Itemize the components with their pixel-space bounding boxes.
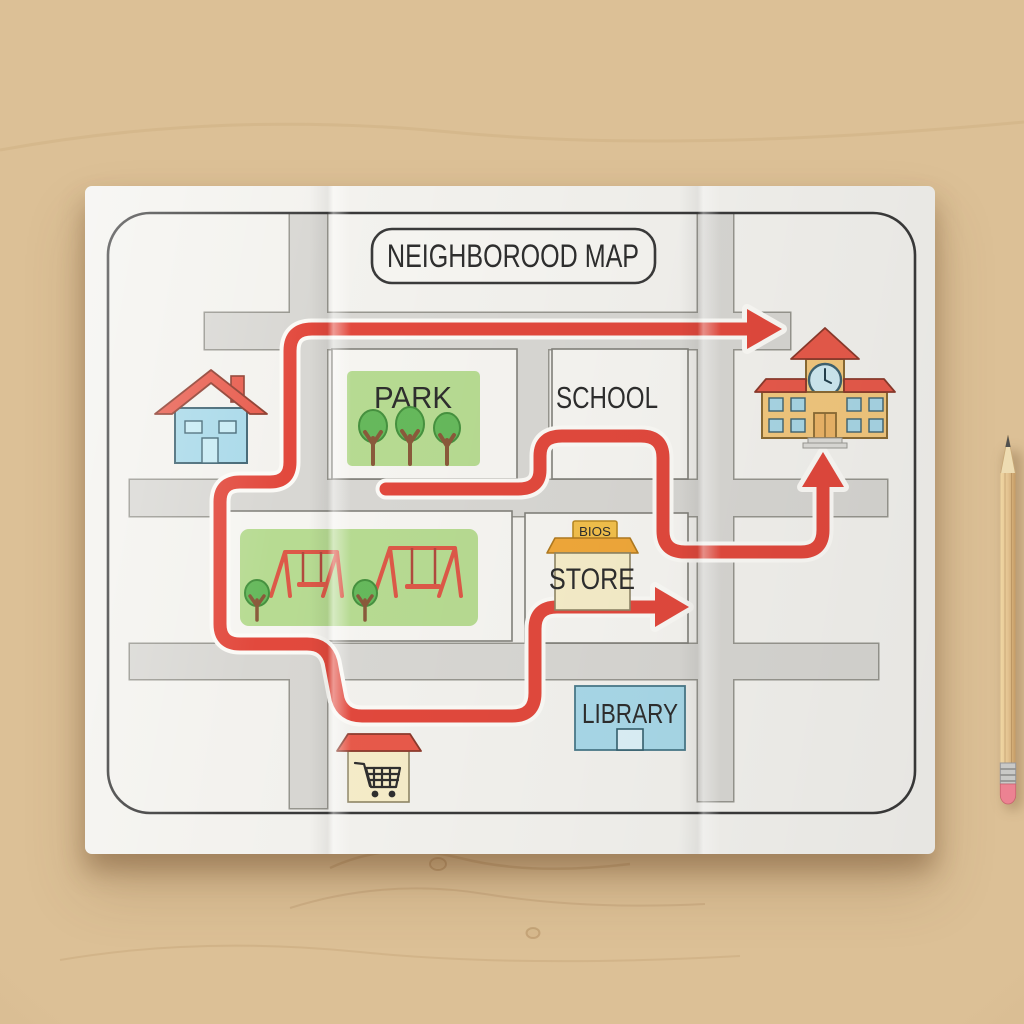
pencil-icon bbox=[991, 430, 1024, 808]
road-vertical-right-fill bbox=[698, 214, 733, 801]
cart-kiosk-roof bbox=[337, 734, 421, 751]
map-title: NEIGHBOROOD MAP bbox=[387, 238, 639, 274]
grain-line bbox=[290, 888, 705, 908]
pencil-body bbox=[1001, 473, 1016, 763]
title-box: NEIGHBOROOD MAP bbox=[372, 229, 655, 283]
library-door bbox=[617, 729, 643, 750]
desk-scene: NEIGHBOROOD MAP PARK SCHOOL bbox=[0, 0, 1024, 1024]
school-window bbox=[769, 398, 783, 411]
school-window bbox=[769, 419, 783, 432]
school-tower-roof bbox=[791, 328, 859, 359]
cart-wheel bbox=[389, 791, 396, 798]
school-window bbox=[791, 419, 805, 432]
house-icon bbox=[155, 370, 267, 463]
neighborhood-map: NEIGHBOROOD MAP PARK SCHOOL bbox=[85, 186, 935, 854]
swing-seat bbox=[297, 582, 327, 587]
shopping-cart-kiosk-icon bbox=[337, 734, 421, 802]
store-sign-label: BIOS bbox=[579, 524, 611, 539]
store-awning bbox=[547, 538, 638, 553]
school-window bbox=[791, 398, 805, 411]
school-label: SCHOOL bbox=[556, 380, 658, 415]
wood-knot bbox=[430, 858, 446, 870]
school-window bbox=[869, 398, 883, 411]
school-steps bbox=[803, 443, 847, 448]
school-wing-roof bbox=[755, 379, 806, 392]
school-window bbox=[869, 419, 883, 432]
school-steps bbox=[808, 438, 842, 443]
house-door bbox=[202, 438, 218, 463]
cart-kiosk-body bbox=[348, 751, 409, 802]
library-building-icon: LIBRARY bbox=[575, 686, 685, 750]
wood-knot bbox=[527, 928, 540, 938]
grain-line bbox=[0, 122, 1024, 150]
store-label: STORE bbox=[549, 563, 635, 596]
house-window bbox=[185, 421, 202, 433]
library-label: LIBRARY bbox=[582, 698, 678, 729]
school-window bbox=[847, 398, 861, 411]
house-window bbox=[219, 421, 236, 433]
cart-wheel bbox=[372, 791, 379, 798]
pencil-graphite-tip bbox=[1005, 435, 1010, 447]
school-wing-roof bbox=[844, 379, 895, 392]
grain-line bbox=[60, 946, 740, 962]
pencil-eraser bbox=[1000, 784, 1015, 804]
paper-map: NEIGHBOROOD MAP PARK SCHOOL bbox=[85, 186, 935, 854]
swing-seat bbox=[405, 584, 441, 589]
park-area: PARK bbox=[347, 371, 480, 466]
school-window bbox=[847, 419, 861, 432]
playground-area bbox=[240, 529, 478, 626]
